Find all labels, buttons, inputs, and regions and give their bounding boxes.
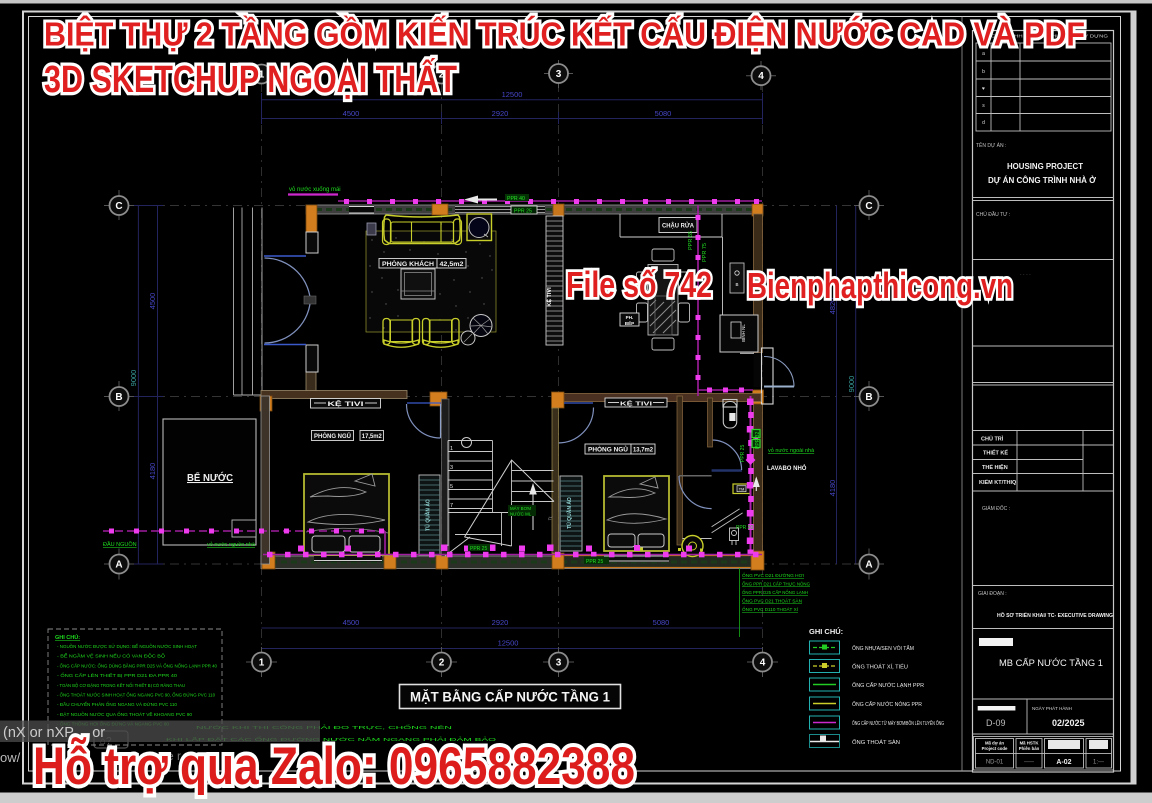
svg-text:ow/: ow/ bbox=[0, 750, 21, 765]
svg-text:NGÀY PHÁT HÀNH: NGÀY PHÁT HÀNH bbox=[1032, 705, 1072, 711]
svg-text:B: B bbox=[735, 282, 738, 287]
svg-text:4: 4 bbox=[758, 71, 764, 82]
svg-text:ĐẦU NGUỒN: ĐẦU NGUỒN bbox=[103, 541, 137, 548]
svg-text:4500: 4500 bbox=[148, 293, 157, 310]
svg-text:C: C bbox=[865, 201, 872, 212]
svg-text:A: A bbox=[865, 560, 872, 571]
svg-text:KỆ TIVI: KỆ TIVI bbox=[620, 399, 653, 407]
svg-text:Hỗ trợ qua Zalo: 0965882388: Hỗ trợ qua Zalo: 0965882388 bbox=[33, 736, 635, 796]
svg-text:ỐNG THOÁT XÍ, TIỂU: ỐNG THOÁT XÍ, TIỂU bbox=[852, 664, 908, 671]
svg-text:PPR 32: PPR 32 bbox=[755, 432, 761, 449]
svg-text:- TOÀN BỘ CƠ ĐẶNG TRONG KẾT N: - TOÀN BỘ CƠ ĐẶNG TRONG KẾT NỐI THIẾT BỊ… bbox=[57, 682, 185, 689]
svg-text:KIỂM KT/THIQ: KIỂM KT/THIQ bbox=[979, 479, 1017, 486]
svg-text:CHỦ TRÌ: CHỦ TRÌ bbox=[981, 435, 1004, 443]
svg-text:Phiên bản: Phiên bản bbox=[1019, 746, 1040, 751]
svg-text:- NGUỒN NƯỚC ĐƯỢC SỬ DỤNG: BỂ: - NGUỒN NƯỚC ĐƯỢC SỬ DỤNG: BỂ NGUỒN NƯỚC… bbox=[57, 643, 197, 650]
svg-text:LAVABO NHỎ: LAVABO NHỎ bbox=[767, 465, 807, 472]
svg-text:42,5m2: 42,5m2 bbox=[440, 261, 464, 268]
svg-text:TỦ QUẦN ÁO: TỦ QUẦN ÁO bbox=[566, 497, 573, 529]
svg-text:ỐNG CẤP NƯỚC TỪ MÁY BƠM/BỒN LÊ: ỐNG CẤP NƯỚC TỪ MÁY BƠM/BỒN LÊN TUYẾN ỐN… bbox=[852, 719, 944, 727]
svg-text:THIẾT KẾ: THIẾT KẾ bbox=[983, 450, 1008, 457]
svg-text:ỐNG CẤP NƯỚC NÓNG PPR: ỐNG CẤP NƯỚC NÓNG PPR bbox=[852, 701, 922, 708]
svg-text:ỐNG PPR D21 CẤP THỰC NÓNG: ỐNG PPR D21 CẤP THỰC NÓNG bbox=[742, 581, 810, 588]
svg-text:12500: 12500 bbox=[498, 639, 519, 648]
svg-text:BẾP: BẾP bbox=[625, 320, 634, 326]
svg-text:TM: TM bbox=[739, 488, 744, 492]
svg-text:PPR 20: PPR 20 bbox=[736, 525, 753, 531]
svg-text:4: 4 bbox=[760, 658, 766, 669]
svg-text:KỆ TIVI: KỆ TIVI bbox=[328, 400, 365, 408]
svg-text:CHẬU RỬA: CHẬU RỬA bbox=[662, 223, 695, 230]
svg-text:PPR 25: PPR 25 bbox=[514, 209, 532, 215]
svg-text:ỐNG THOÁT SÀN: ỐNG THOÁT SÀN bbox=[852, 739, 900, 746]
svg-text:3: 3 bbox=[450, 465, 453, 471]
svg-text:ỐNG PVC D21 ĐƯỜNG HƠI: ỐNG PVC D21 ĐƯỜNG HƠI bbox=[742, 572, 804, 579]
svg-text:THỂ HIỆN: THỂ HIỆN bbox=[982, 463, 1008, 471]
svg-text:TÊN DỰ ÁN :: TÊN DỰ ÁN : bbox=[976, 141, 1006, 149]
svg-text:- ĐẶT NGUỒN NƯỚC QUA ỐNG THOÁ: - ĐẶT NGUỒN NƯỚC QUA ỐNG THOÁT VỀ KHOANG… bbox=[57, 711, 192, 718]
svg-text:♥: ♥ bbox=[982, 86, 985, 92]
svg-text:PHÒNG NGỦ: PHÒNG NGỦ bbox=[314, 431, 351, 440]
svg-text:1: 1 bbox=[259, 658, 265, 669]
svg-text:PH.: PH. bbox=[626, 315, 634, 320]
svg-text:BỂ NƯỚC: BỂ NƯỚC bbox=[187, 471, 233, 484]
svg-text:9000: 9000 bbox=[847, 376, 856, 393]
svg-text:3: 3 bbox=[556, 658, 562, 669]
svg-text:13,7m2: 13,7m2 bbox=[633, 447, 653, 454]
svg-text:C: C bbox=[115, 201, 122, 212]
svg-text:5080: 5080 bbox=[653, 618, 670, 627]
svg-text:02/2025: 02/2025 bbox=[1052, 718, 1085, 728]
svg-text:Mã HSTK: Mã HSTK bbox=[1020, 741, 1040, 746]
svg-text:PHÒNG NGỦ: PHÒNG NGỦ bbox=[588, 445, 628, 454]
svg-text:NƯỚC ML: NƯỚC ML bbox=[510, 512, 532, 517]
svg-text:A: A bbox=[115, 560, 122, 571]
svg-text:1:---: 1:--- bbox=[1093, 760, 1104, 766]
svg-text:3D SKETCHUP NGOẠI THẤT: 3D SKETCHUP NGOẠI THẤT bbox=[44, 57, 457, 101]
svg-text:PPR 25: PPR 25 bbox=[586, 559, 603, 565]
svg-text:4180: 4180 bbox=[828, 480, 837, 497]
svg-text:9000: 9000 bbox=[129, 370, 138, 387]
svg-text:ND-01: ND-01 bbox=[986, 760, 1004, 766]
svg-text:17,5m2: 17,5m2 bbox=[362, 433, 382, 440]
svg-text:2920: 2920 bbox=[492, 109, 509, 118]
svg-text:B: B bbox=[865, 392, 872, 403]
svg-text:vỏ nước xuống mái: vỏ nước xuống mái bbox=[289, 186, 341, 193]
svg-text:ỐNG PVC D21 THOÁT SÀN: ỐNG PVC D21 THOÁT SÀN bbox=[742, 598, 803, 605]
svg-text:ỐNG PVC D110 THOÁT XÍ: ỐNG PVC D110 THOÁT XÍ bbox=[742, 606, 799, 613]
svg-text:BIỆT THỰ 2 TẦNG GỒM KIẾN TRÚC: BIỆT THỰ 2 TẦNG GỒM KIẾN TRÚC KẾT CẤU ĐI… bbox=[44, 16, 1085, 53]
svg-text:File số 742: File số 742 bbox=[566, 264, 712, 305]
svg-text:1: 1 bbox=[450, 446, 453, 452]
svg-text:7: 7 bbox=[450, 503, 453, 509]
svg-text:4180: 4180 bbox=[148, 463, 157, 480]
svg-text:5: 5 bbox=[450, 484, 453, 490]
svg-text:12500: 12500 bbox=[502, 90, 523, 99]
svg-text:PPR 75: PPR 75 bbox=[702, 243, 708, 262]
svg-text:A-02: A-02 bbox=[1056, 759, 1071, 766]
svg-text:Mã dự án: Mã dự án bbox=[985, 741, 1004, 746]
svg-text:GHI CHÚ:: GHI CHÚ: bbox=[55, 634, 80, 641]
svg-text:PPR 65: PPR 65 bbox=[688, 231, 694, 250]
svg-text:4500: 4500 bbox=[343, 109, 360, 118]
svg-text:ỐNG NHỰA/SEN VÒI TẮM: ỐNG NHỰA/SEN VÒI TẮM bbox=[852, 644, 914, 652]
svg-text:GIAI ĐOẠN :: GIAI ĐOẠN : bbox=[978, 591, 1007, 597]
svg-text:2: 2 bbox=[439, 658, 445, 669]
svg-text:PPR 25: PPR 25 bbox=[740, 445, 746, 462]
svg-text:4500: 4500 bbox=[343, 618, 360, 627]
svg-text:PPR 25: PPR 25 bbox=[470, 546, 487, 552]
svg-text:ỐNG CẤP NƯỚC LẠNH PPR: ỐNG CẤP NƯỚC LẠNH PPR bbox=[852, 682, 924, 689]
svg-text:ỐNG PPR D25 CẤP NỐNG LẠNH: ỐNG PPR D25 CẤP NỐNG LẠNH bbox=[742, 589, 808, 596]
svg-text:HỒ SƠ TRIỂN KHAI/ TC- EXECUTIV: HỒ SƠ TRIỂN KHAI/ TC- EXECUTIVE DRAWING bbox=[997, 612, 1113, 619]
svg-text:GIÁM ĐỐC :: GIÁM ĐỐC : bbox=[982, 505, 1010, 512]
svg-text:TỦ QUẦN ÁO: TỦ QUẦN ÁO bbox=[425, 499, 432, 531]
svg-text:HOUSING PROJECT: HOUSING PROJECT bbox=[1007, 162, 1083, 171]
svg-text:MÁY BƠM: MÁY BƠM bbox=[510, 506, 531, 511]
svg-text:- ỐNG THOÁT NƯỚC SINH HOẠT ỐN: - ỐNG THOÁT NƯỚC SINH HOẠT ỐNG NGANG PVC… bbox=[57, 692, 215, 699]
svg-text:3: 3 bbox=[556, 69, 562, 80]
svg-text:D-09: D-09 bbox=[986, 718, 1006, 728]
svg-text:d: d bbox=[982, 120, 985, 126]
svg-text:· · · ·: · · · · bbox=[1020, 272, 1031, 278]
svg-text:KỆ TIVI: KỆ TIVI bbox=[545, 287, 553, 307]
svg-text:vỏ nước ngoài nhà: vỏ nước ngoài nhà bbox=[768, 447, 815, 454]
svg-text:BÌNH NL: BÌNH NL bbox=[740, 324, 746, 342]
svg-text:vỏ nước nguồn nhà: vỏ nước nguồn nhà bbox=[207, 541, 256, 548]
svg-text:CHỦ ĐẦU TƯ :: CHỦ ĐẦU TƯ : bbox=[976, 211, 1010, 218]
svg-text:MB CẤP NƯỚC TẦNG 1: MB CẤP NƯỚC TẦNG 1 bbox=[999, 658, 1103, 668]
svg-text:2920: 2920 bbox=[492, 618, 509, 627]
svg-text:Bienphapthicong.vn: Bienphapthicong.vn bbox=[747, 265, 1013, 306]
svg-text:PPR 40: PPR 40 bbox=[507, 196, 525, 202]
svg-text:DỰ ÁN CÔNG TRÌNH NHÀ Ở: DỰ ÁN CÔNG TRÌNH NHÀ Ở bbox=[988, 176, 1096, 185]
svg-text:Project code: Project code bbox=[982, 746, 1008, 751]
svg-text:5080: 5080 bbox=[655, 109, 672, 118]
svg-text:- ĐẦU CHUYỂN PHÂN ỐNG NGANG V: - ĐẦU CHUYỂN PHÂN ỐNG NGANG VÀ ĐỨNG PVC … bbox=[57, 701, 177, 708]
svg-text:GHI CHÚ:: GHI CHÚ: bbox=[809, 627, 843, 636]
svg-text:b: b bbox=[982, 69, 985, 75]
svg-text:MẶT BẰNG CẤP NƯỚC TẦNG 1: MẶT BẰNG CẤP NƯỚC TẦNG 1 bbox=[410, 690, 610, 705]
svg-text:-----: ----- bbox=[1024, 760, 1034, 766]
svg-text:B: B bbox=[115, 392, 122, 403]
svg-text:PHÒNG KHÁCH: PHÒNG KHÁCH bbox=[382, 259, 434, 268]
